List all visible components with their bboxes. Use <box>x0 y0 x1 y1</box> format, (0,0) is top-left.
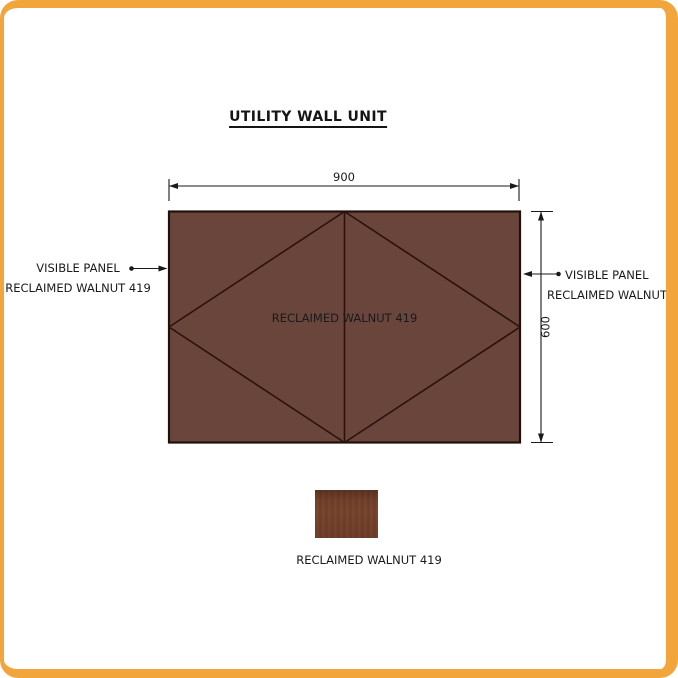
material-swatch-label: RECLAIMED WALNUT 419 <box>296 554 442 567</box>
material-swatch <box>315 490 378 538</box>
right-leader-dot <box>556 272 561 277</box>
width-arrowhead-left <box>169 183 178 189</box>
height-arrowhead-top <box>538 212 544 221</box>
width-dimension: 900 <box>169 170 519 201</box>
height-arrowhead-bottom <box>538 434 544 443</box>
left-callout-line1: VISIBLE PANEL <box>36 262 120 275</box>
right-callout-leader <box>523 271 561 277</box>
height-dimension-value: 600 <box>539 316 553 338</box>
right-callout-line1: VISIBLE PANEL <box>565 269 649 282</box>
panel-drawing: RECLAIMED WALNUT 419 <box>169 212 520 443</box>
width-arrowhead-right <box>510 183 519 189</box>
width-dimension-value: 900 <box>333 170 355 184</box>
left-callout-line2: RECLAIMED WALNUT 419 <box>5 282 151 295</box>
right-callout-line2: RECLAIMED WALNUT 419 <box>547 289 678 302</box>
left-callout-leader <box>129 266 167 272</box>
right-leader-arrowhead <box>523 271 532 277</box>
panel-material-label: RECLAIMED WALNUT 419 <box>272 311 418 325</box>
left-leader-arrowhead <box>159 266 168 272</box>
drawing-title: UTILITY WALL UNIT <box>229 109 387 128</box>
height-dimension: 600 <box>531 212 553 443</box>
drawing-sheet: UTILITY WALL UNIT 900 RECLAIMED WALNUT 4… <box>0 0 678 678</box>
drawing-canvas: 900 RECLAIMED WALNUT 419 600 <box>0 0 678 678</box>
